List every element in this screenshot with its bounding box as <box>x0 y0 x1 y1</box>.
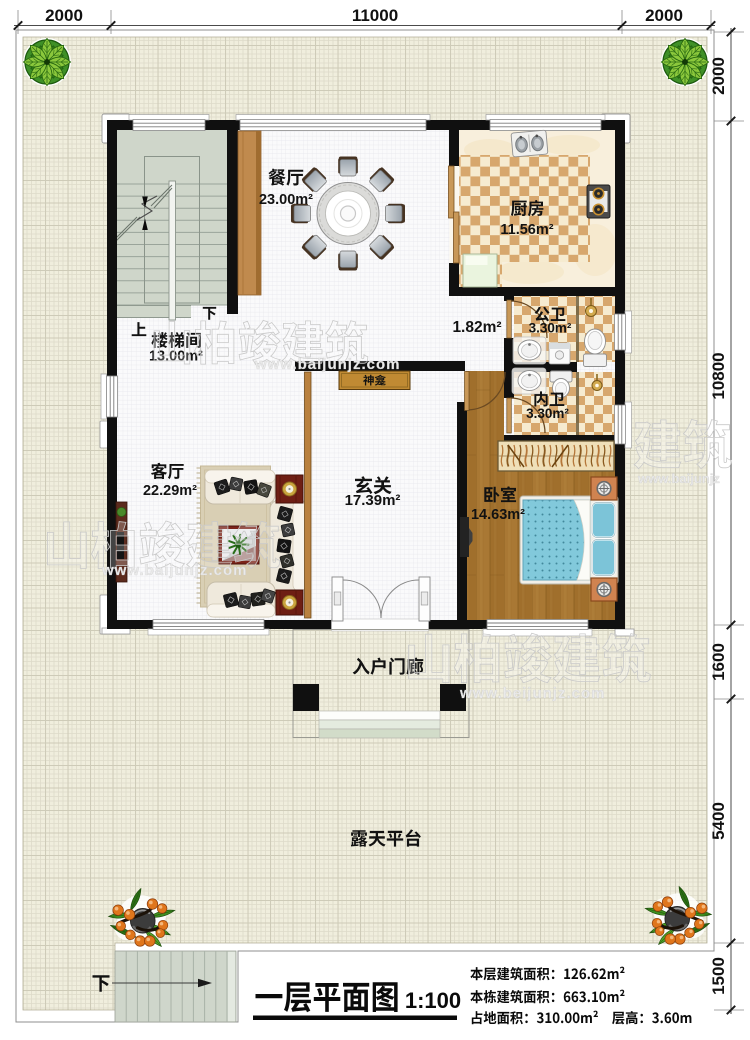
svg-text:1:100: 1:100 <box>405 988 461 1013</box>
svg-text:2000: 2000 <box>645 6 683 25</box>
svg-text:1.82m²: 1.82m² <box>452 319 501 336</box>
svg-text:23.00m²: 23.00m² <box>259 192 313 208</box>
svg-text:10800: 10800 <box>709 352 728 399</box>
svg-text:14.63m²: 14.63m² <box>471 507 525 523</box>
svg-text:www.baijunjz.com: www.baijunjz.com <box>101 562 247 579</box>
svg-text:2000: 2000 <box>45 6 83 25</box>
svg-text:www.baijunjz.com: www.baijunjz.com <box>254 356 400 373</box>
svg-text:3.30m²: 3.30m² <box>529 321 572 336</box>
svg-text:17.39m²: 17.39m² <box>345 492 401 509</box>
svg-text:11.56m²: 11.56m² <box>500 222 553 238</box>
svg-text:1500: 1500 <box>709 957 728 995</box>
svg-text:2000: 2000 <box>709 57 728 95</box>
svg-text:www.beijunjz.com: www.beijunjz.com <box>459 685 605 702</box>
svg-text:11000: 11000 <box>352 6 398 25</box>
svg-text:22.29m²: 22.29m² <box>143 483 197 499</box>
svg-text:1600: 1600 <box>709 643 728 681</box>
svg-text:5400: 5400 <box>709 802 728 840</box>
svg-text:3.30m²: 3.30m² <box>526 406 569 421</box>
svg-text:www.baijunjz: www.baijunjz <box>637 471 720 486</box>
